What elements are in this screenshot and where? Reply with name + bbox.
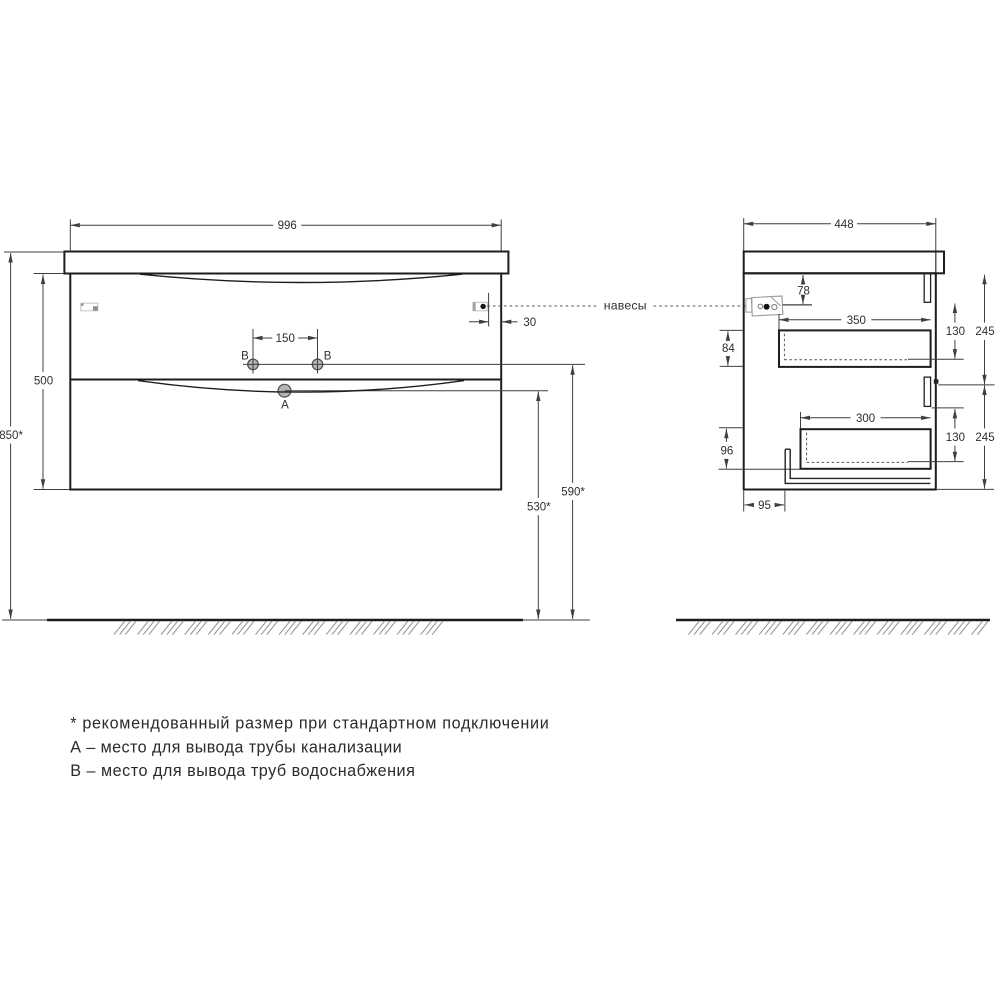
svg-text:130: 130 <box>946 432 965 444</box>
svg-text:А – место для вывода трубы кан: А – место для вывода трубы канализации <box>70 738 402 756</box>
svg-text:448: 448 <box>834 219 853 231</box>
svg-text:590*: 590* <box>561 487 585 499</box>
svg-text:* рекомендованный размер при с: * рекомендованный размер при стандартном… <box>70 714 549 732</box>
svg-text:850*: 850* <box>0 430 23 442</box>
svg-text:А: А <box>281 400 289 412</box>
svg-text:В – место для вывода труб водо: В – место для вывода труб водоснабжения <box>70 762 415 780</box>
svg-text:навесы: навесы <box>604 299 647 313</box>
svg-text:В: В <box>324 350 332 362</box>
svg-text:245: 245 <box>975 432 994 444</box>
svg-text:95: 95 <box>758 500 771 512</box>
svg-text:96: 96 <box>721 446 734 458</box>
svg-text:150: 150 <box>276 333 295 345</box>
svg-text:В: В <box>241 350 249 362</box>
svg-text:530*: 530* <box>527 502 551 514</box>
svg-text:245: 245 <box>975 326 994 338</box>
svg-text:996: 996 <box>278 220 297 232</box>
svg-text:500: 500 <box>34 376 53 388</box>
svg-text:350: 350 <box>847 315 866 327</box>
svg-text:30: 30 <box>523 317 536 329</box>
svg-text:300: 300 <box>856 413 875 425</box>
svg-text:78: 78 <box>797 285 810 297</box>
svg-text:130: 130 <box>946 326 965 338</box>
svg-text:84: 84 <box>722 343 735 355</box>
